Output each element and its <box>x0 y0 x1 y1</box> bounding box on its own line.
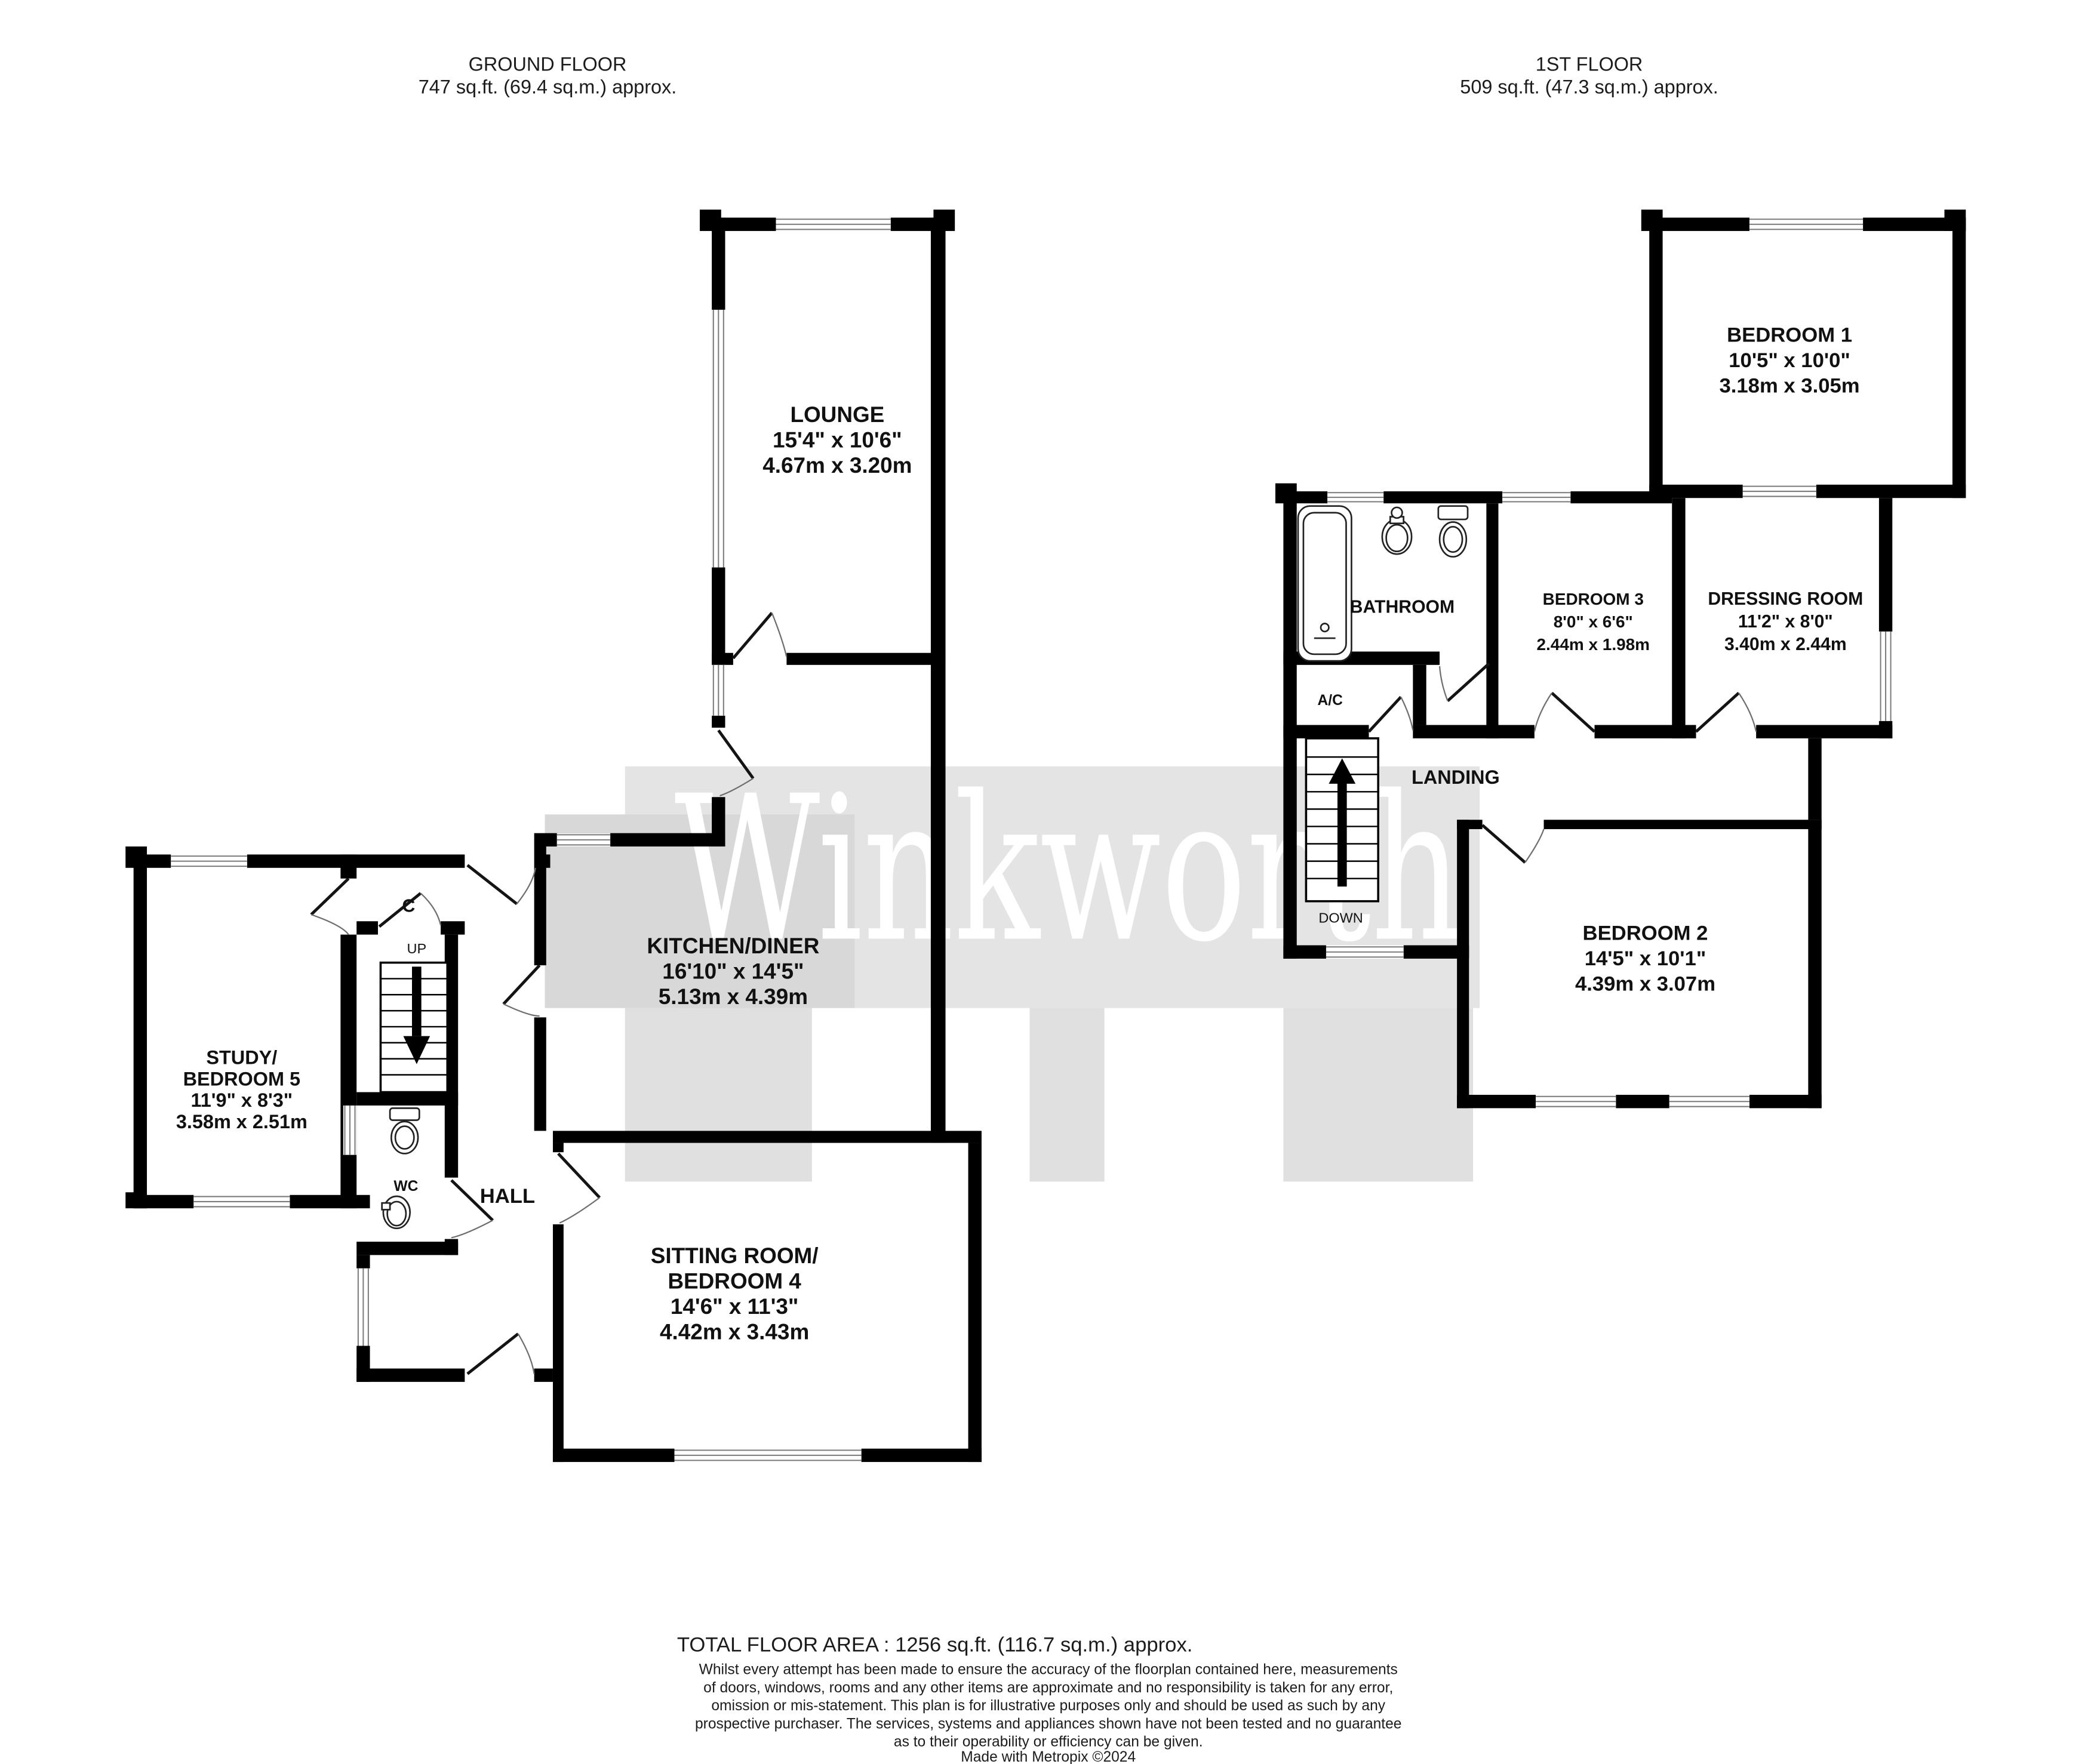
sitting-imperial: 14'6" x 11'3" <box>671 1294 799 1319</box>
door-swing <box>733 613 786 658</box>
window <box>1326 946 1404 959</box>
ground-floor-title: GROUND FLOOR <box>469 54 627 75</box>
sitting-metric: 4.42m x 3.43m <box>660 1319 809 1344</box>
room-label-lounge: LOUNGE 15'4" x 10'6" 4.67m x 3.20m <box>762 402 912 478</box>
window <box>712 310 725 568</box>
room-label-bedroom1: BEDROOM 1 10'5" x 10'0" 3.18m x 3.05m <box>1720 324 1860 398</box>
lounge-imperial: 15'4" x 10'6" <box>773 427 902 452</box>
metropix-credit: Made with Metropix ©2024 <box>961 1749 1136 1763</box>
bedroom1-metric: 3.18m x 3.05m <box>1720 375 1860 398</box>
room-label-sitting: SITTING ROOM/ BEDROOM 4 14'6" x 11'3" 4.… <box>651 1243 819 1344</box>
room-label-cupboard: C <box>402 897 415 916</box>
window <box>712 665 725 716</box>
bedroom1-imperial: 10'5" x 10'0" <box>1729 349 1850 372</box>
first-floor-area: 509 sq.ft. (47.3 sq.m.) approx. <box>1460 76 1718 98</box>
window <box>343 1106 356 1155</box>
toilet-icon <box>1438 506 1468 557</box>
bedroom2-name: BEDROOM 2 <box>1583 922 1708 945</box>
kitchen-name: KITCHEN/DINER <box>647 934 819 958</box>
room-label-ac: A/C <box>1317 692 1343 709</box>
bedroom1-name: BEDROOM 1 <box>1727 324 1852 347</box>
window <box>1749 218 1863 231</box>
room-label-bathroom: BATHROOM <box>1350 598 1455 617</box>
room-label-landing: LANDING <box>1412 766 1500 788</box>
bedroom3-imperial: 8'0" x 6'6" <box>1554 612 1633 631</box>
window <box>1669 1095 1749 1108</box>
lounge-name: LOUNGE <box>790 402 884 427</box>
lounge-metric: 4.67m x 3.20m <box>762 453 912 478</box>
bathtub-icon <box>1298 506 1351 661</box>
header-ground-floor: GROUND FLOOR 747 sq.ft. (69.4 sq.m.) app… <box>419 54 677 98</box>
room-label-dressing: DRESSING ROOM 11'2" x 8'0" 3.40m x 2.44m <box>1708 589 1863 654</box>
bedroom3-metric: 2.44m x 1.98m <box>1537 635 1650 654</box>
sink-icon <box>1382 507 1412 554</box>
door-swing <box>1696 693 1756 732</box>
dressing-name: DRESSING ROOM <box>1708 589 1863 609</box>
disclaimer-line: as to their operability or efficiency ca… <box>894 1734 1203 1750</box>
total-floor-area: TOTAL FLOOR AREA : 1256 sq.ft. (116.7 sq… <box>677 1634 1193 1657</box>
door-swing <box>1440 664 1489 701</box>
window <box>674 1449 861 1462</box>
door-swing <box>1369 697 1413 732</box>
room-label-bedroom3: BEDROOM 3 8'0" x 6'6" 2.44m x 1.98m <box>1537 590 1650 654</box>
door-swing <box>1483 825 1544 863</box>
stairs-down-label: DOWN <box>1318 910 1363 925</box>
window <box>1327 491 1383 503</box>
disclaimer-line: omission or mis-statement. This plan is … <box>711 1698 1385 1714</box>
ground-floor-area: 747 sq.ft. (69.4 sq.m.) approx. <box>419 76 677 98</box>
door-swing <box>311 879 349 935</box>
first-floor-title: 1ST FLOOR <box>1536 54 1643 75</box>
bedroom3-name: BEDROOM 3 <box>1543 590 1644 608</box>
dressing-metric: 3.40m x 2.44m <box>1724 635 1847 654</box>
room-label-study: STUDY/ BEDROOM 5 11'9" x 8'3" 3.58m x 2.… <box>176 1047 308 1132</box>
sitting-name1: SITTING ROOM/ <box>651 1243 819 1268</box>
header-first-floor: 1ST FLOOR 509 sq.ft. (47.3 sq.m.) approx… <box>1460 54 1718 98</box>
door-swing <box>1535 693 1595 732</box>
stairs-up-label: UP <box>407 941 427 956</box>
footer: TOTAL FLOOR AREA : 1256 sq.ft. (116.7 sq… <box>677 1634 1402 1764</box>
toilet-icon <box>390 1108 419 1153</box>
room-label-kitchen: KITCHEN/DINER 16'10" x 14'5" 5.13m x 4.3… <box>647 934 819 1009</box>
door-swing <box>468 1334 534 1374</box>
study-imperial: 11'9" x 8'3" <box>191 1089 293 1111</box>
study-metric: 3.58m x 2.51m <box>176 1111 308 1132</box>
window <box>557 833 610 846</box>
ground-floor-staircase: UP <box>380 941 447 1092</box>
room-label-bedroom2: BEDROOM 2 14'5" x 10'1" 4.39m x 3.07m <box>1575 922 1715 996</box>
study-name2: BEDROOM 5 <box>183 1068 300 1089</box>
kitchen-imperial: 16'10" x 14'5" <box>662 959 804 983</box>
door-swing <box>503 965 539 1016</box>
door-swing <box>468 865 536 904</box>
room-label-wc: WC <box>393 1178 418 1195</box>
window <box>171 854 247 867</box>
floorplan-page: Winkworth GROUND FLOOR 747 sq.ft. (69.4 … <box>0 0 2094 1764</box>
study-name1: STUDY/ <box>206 1047 277 1069</box>
door-swing <box>558 1153 599 1223</box>
room-label-hall: HALL <box>480 1185 535 1208</box>
window <box>1536 1095 1616 1108</box>
bedroom2-metric: 4.39m x 3.07m <box>1575 973 1715 996</box>
window <box>1502 491 1570 503</box>
wc-fixtures <box>382 1108 420 1228</box>
window <box>1879 632 1892 721</box>
sink-icon <box>382 1196 410 1229</box>
disclaimer-line: of doors, windows, rooms and any other i… <box>703 1680 1393 1696</box>
window <box>356 1269 370 1346</box>
disclaimer-line: prospective purchaser. The services, sys… <box>695 1716 1402 1732</box>
kitchen-metric: 5.13m x 4.39m <box>659 984 808 1009</box>
dressing-imperial: 11'2" x 8'0" <box>1738 612 1833 632</box>
first-floor-staircase: DOWN <box>1306 738 1378 926</box>
disclaimer-line: Whilst every attempt has been made to en… <box>699 1662 1398 1678</box>
window <box>1743 485 1816 498</box>
window <box>776 218 890 231</box>
bathroom-fixtures <box>1298 506 1468 661</box>
window <box>193 1195 290 1208</box>
sitting-name2: BEDROOM 4 <box>668 1269 801 1293</box>
bedroom2-imperial: 14'5" x 10'1" <box>1585 947 1706 970</box>
